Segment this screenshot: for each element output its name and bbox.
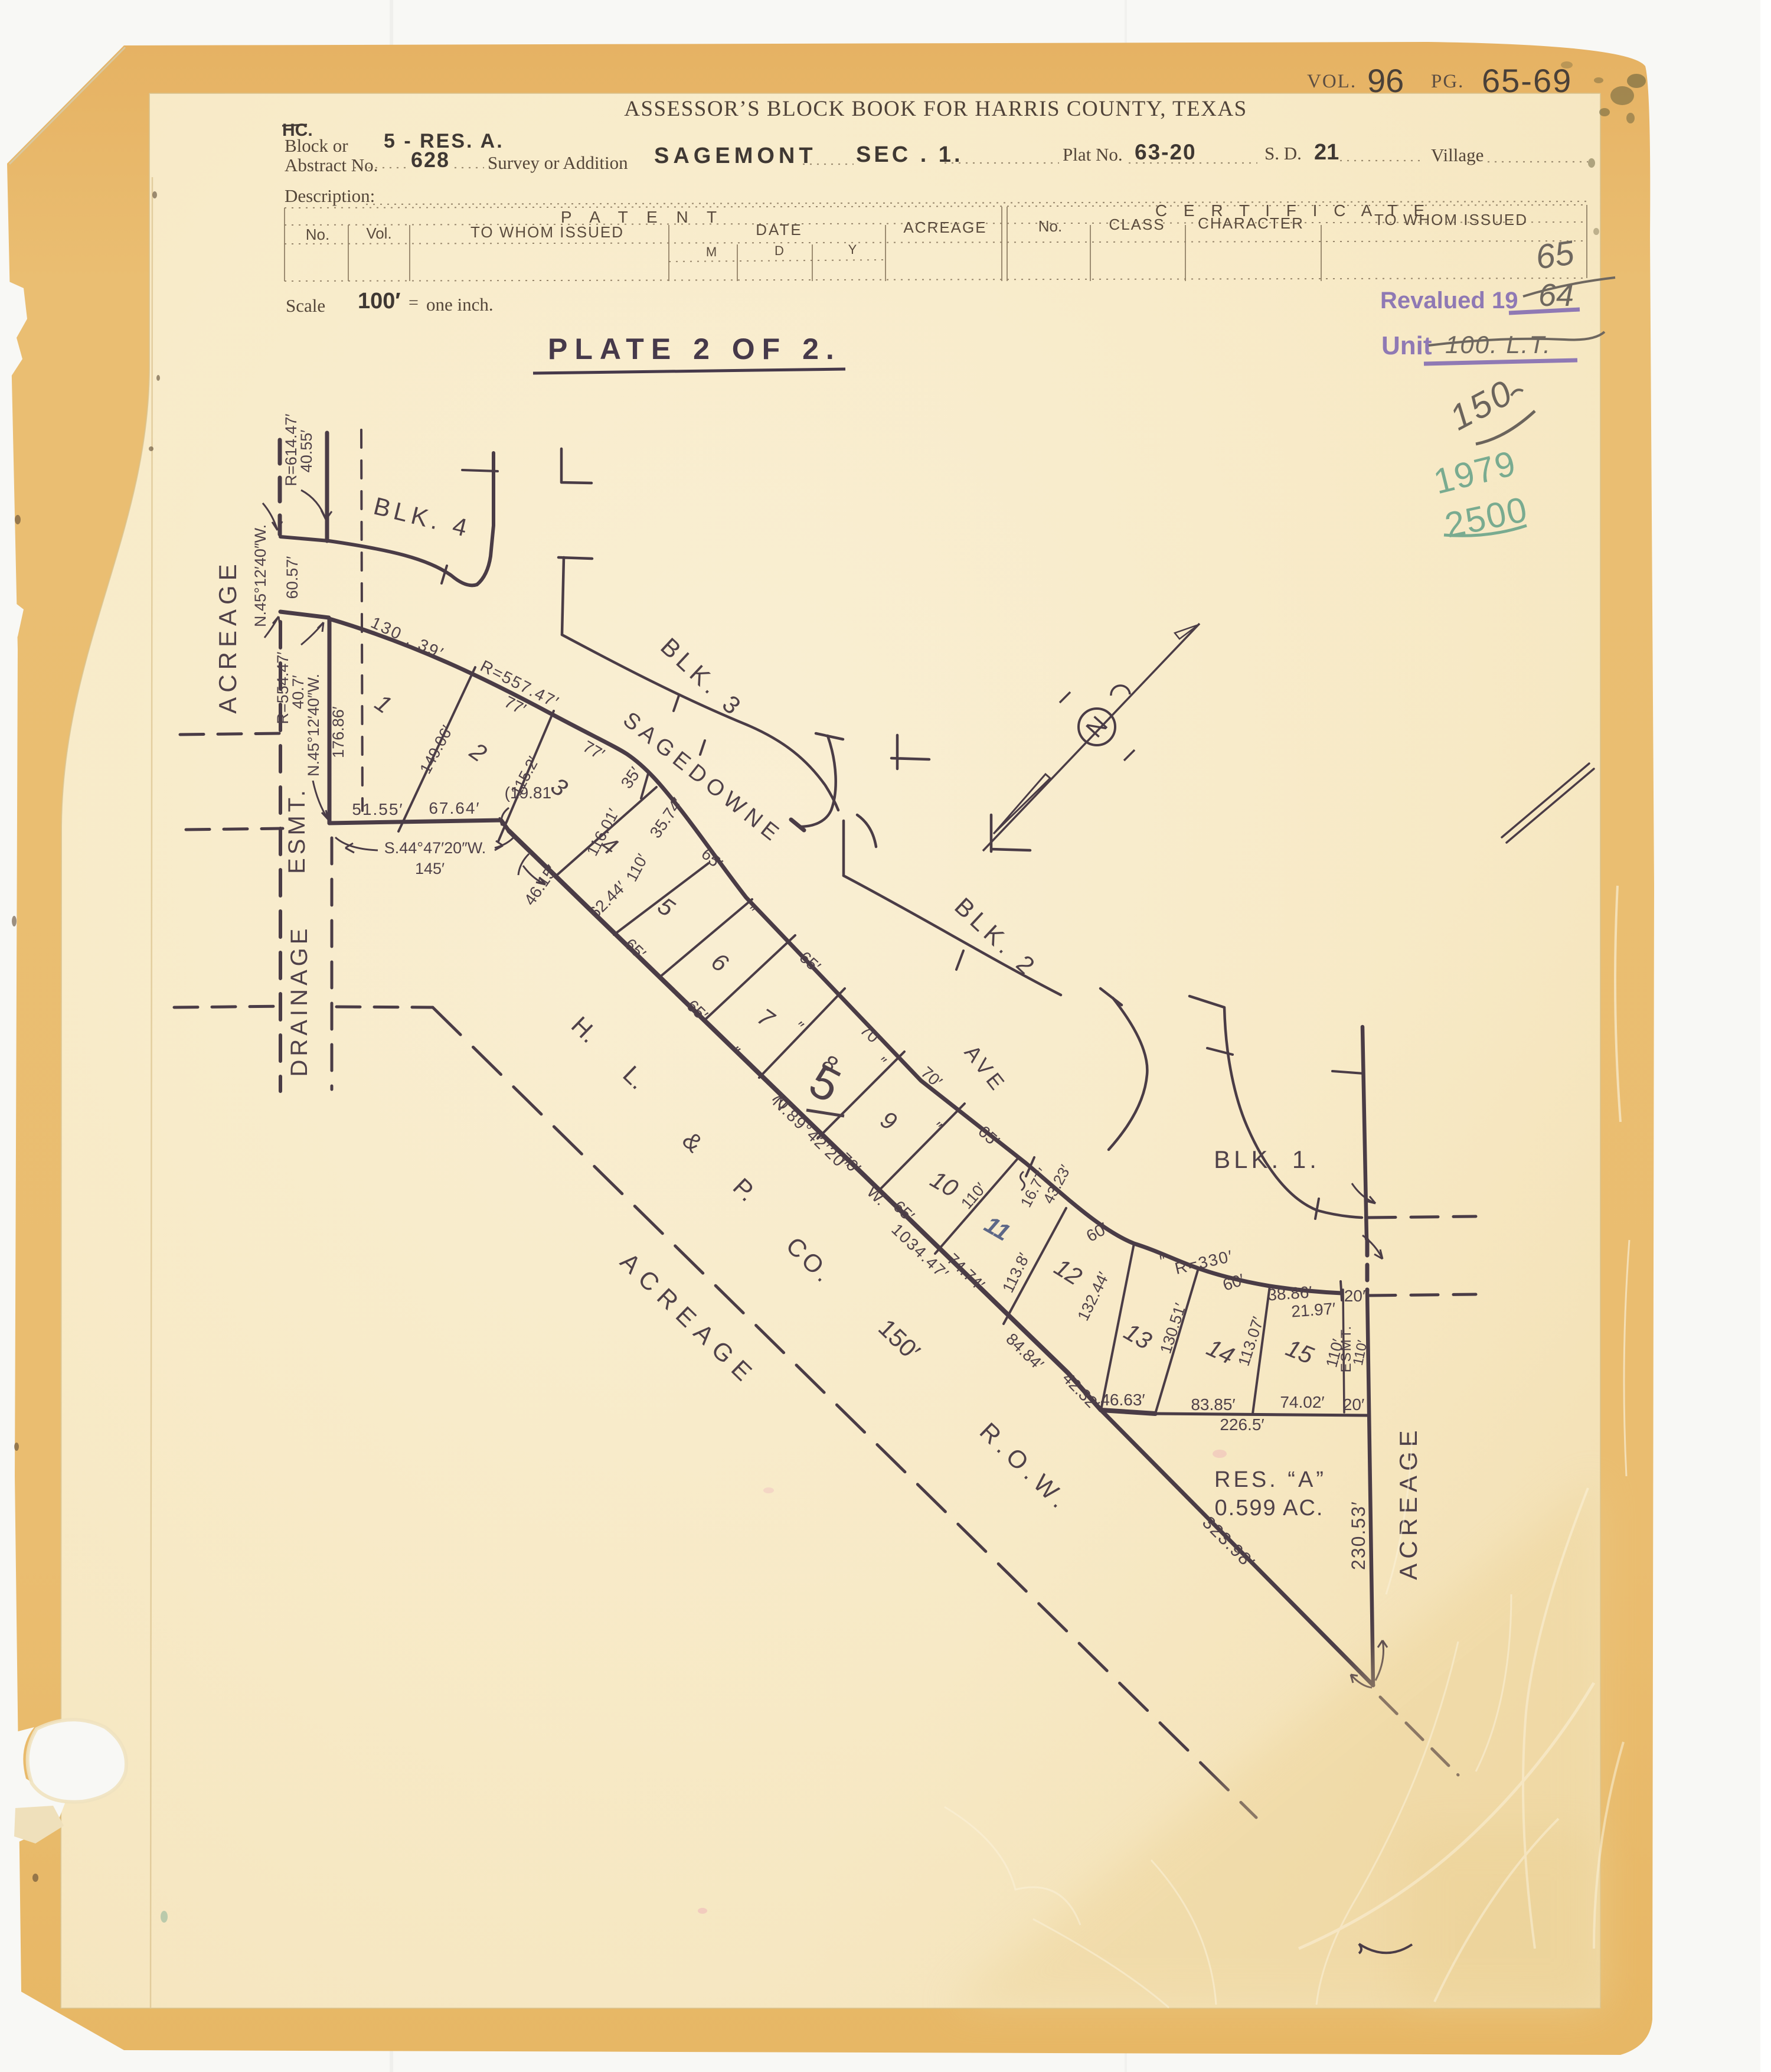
svg-text:N.45°12′40″W.: N.45°12′40″W.	[305, 674, 322, 776]
svg-text:S. D.: S. D.	[1264, 143, 1302, 164]
svg-text:No.: No.	[1038, 217, 1062, 235]
svg-text:ASSESSOR’S BLOCK BOOK FOR HARR: ASSESSOR’S BLOCK BOOK FOR HARRIS COUNTY,…	[624, 97, 1247, 121]
svg-text:ESMT.: ESMT.	[284, 787, 310, 874]
svg-text:20′: 20′	[1343, 1395, 1364, 1414]
svg-text:64: 64	[1538, 278, 1574, 313]
svg-text:Unit: Unit	[1381, 331, 1432, 360]
svg-text:628: 628	[411, 148, 450, 172]
svg-text:Abstract No.: Abstract No.	[285, 155, 378, 175]
svg-text:VOL.: VOL.	[1307, 71, 1357, 92]
svg-text:Revalued 19: Revalued 19	[1380, 288, 1518, 314]
svg-text:S.44°47′20″W.: S.44°47′20″W.	[384, 839, 486, 857]
svg-text:100. L.T.: 100. L.T.	[1445, 331, 1551, 358]
svg-text:Block or: Block or	[285, 135, 348, 156]
svg-text:DATE: DATE	[756, 221, 802, 239]
svg-text:SAGEMONT: SAGEMONT	[654, 143, 817, 168]
svg-text:74.02′: 74.02′	[1280, 1393, 1324, 1411]
svg-text:230.53′: 230.53′	[1348, 1500, 1369, 1570]
svg-text:PG.: PG.	[1431, 71, 1464, 92]
svg-text:Village: Village	[1431, 145, 1484, 165]
svg-text:ACREAGE: ACREAGE	[214, 559, 241, 713]
svg-text:TO WHOM ISSUED: TO WHOM ISSUED	[470, 223, 624, 241]
svg-text:65: 65	[1533, 233, 1577, 276]
svg-text:226.5′: 226.5′	[1220, 1415, 1264, 1434]
svg-text:Description:: Description:	[285, 185, 375, 206]
svg-text:M: M	[706, 244, 717, 259]
svg-text:176.86′: 176.86′	[329, 706, 347, 758]
svg-text:67.64′: 67.64′	[429, 799, 480, 817]
svg-text:RES. “A”: RES. “A”	[1214, 1467, 1326, 1492]
svg-text:CLASS: CLASS	[1109, 216, 1165, 233]
svg-text:DRAINAGE: DRAINAGE	[286, 925, 312, 1077]
svg-text:100′: 100′	[358, 289, 401, 314]
svg-text:D: D	[775, 243, 784, 258]
svg-text:Vol.: Vol.	[366, 224, 391, 242]
svg-text:65-69: 65-69	[1482, 62, 1572, 99]
svg-text:ACREAGE: ACREAGE	[903, 218, 986, 236]
svg-text:CHARACTER: CHARACTER	[1198, 214, 1304, 232]
svg-text:20′: 20′	[1344, 1287, 1365, 1305]
svg-text:Survey or Addition: Survey or Addition	[488, 152, 628, 173]
svg-text:ESMT.: ESMT.	[1338, 1325, 1354, 1373]
svg-text:Y: Y	[848, 242, 857, 257]
svg-text:BLK. 1.: BLK. 1.	[1214, 1146, 1320, 1173]
svg-text:PLATE 2 OF 2.: PLATE 2 OF 2.	[548, 332, 841, 366]
svg-text:63-20: 63-20	[1135, 140, 1197, 164]
svg-text:0.599 AC.: 0.599 AC.	[1215, 1496, 1324, 1520]
svg-text:40.55′: 40.55′	[298, 430, 315, 473]
svg-text:51.55′: 51.55′	[352, 800, 403, 818]
svg-text:145′: 145′	[415, 860, 445, 877]
svg-text:60.57′: 60.57′	[283, 556, 301, 599]
svg-text:one inch.: one inch.	[426, 294, 494, 315]
svg-text:No.: No.	[306, 226, 329, 243]
svg-text:Plat No.: Plat No.	[1063, 144, 1123, 165]
svg-text:TO WHOM ISSUED: TO WHOM ISSUED	[1374, 211, 1528, 229]
svg-text:=: =	[409, 293, 419, 312]
svg-text:SEC . 1.: SEC . 1.	[856, 142, 963, 167]
svg-text:83.85′: 83.85′	[1191, 1395, 1235, 1414]
svg-text:N.45°12′40″W.: N.45°12′40″W.	[251, 524, 269, 627]
svg-text:96: 96	[1367, 62, 1404, 99]
svg-text:46.63′: 46.63′	[1100, 1391, 1145, 1409]
svg-text:21.97′: 21.97′	[1290, 1299, 1336, 1320]
svg-text:ACREAGE: ACREAGE	[1394, 1425, 1422, 1580]
svg-text:Scale: Scale	[286, 295, 325, 316]
svg-text:21: 21	[1314, 140, 1339, 165]
